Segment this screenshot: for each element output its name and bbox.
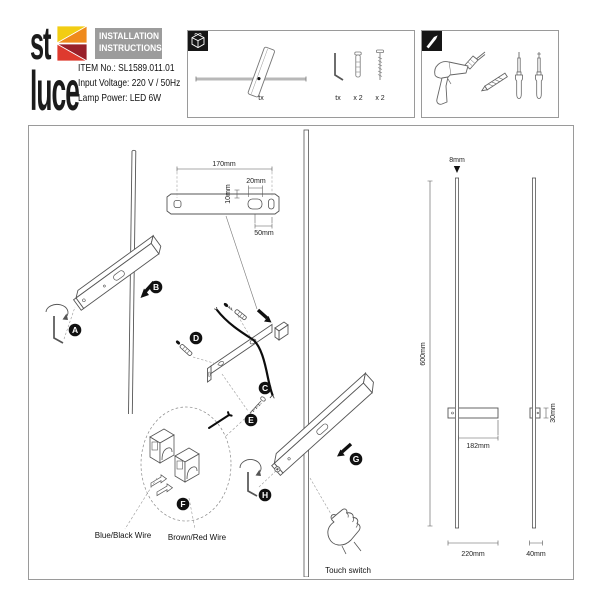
pencil-illustration [481,73,508,92]
title-line2: INSTRUCTIONS [99,43,154,55]
packed-lamp-illustration: tx [196,47,306,102]
dim-line-600 [428,181,433,526]
step-badge-e: E [245,414,258,427]
step-badge-c: C [259,382,272,395]
wall-junction-box [275,322,288,340]
wire-label-blue: Blue/Black Wire [95,531,152,540]
step-letter-b: B [153,282,159,292]
tube-front-view [455,178,458,528]
item-no: ITEM No.: SL1589.011.01 [78,62,175,74]
dim-600mm: 600mm [420,342,427,366]
dim-line-30 [544,408,549,418]
dim-170mm: 170mm [212,161,236,168]
dim-40mm: 40mm [526,551,546,558]
lamp-body-diagonal [248,47,275,98]
arrow-g-shaft [342,444,351,452]
lamp-tube-center [304,130,309,577]
screw-e [222,374,266,413]
dim-30mm: 30mm [550,403,557,423]
logo-text-luce: luce [30,60,79,115]
rotate-arrow-h [240,460,261,473]
dim-line-40 [530,541,543,546]
step-letter-f: F [180,499,185,509]
plate-slot-center [248,199,262,209]
step-letter-e: E [248,415,254,425]
installation-diagram: 170mm 20mm 10mm 50mm [29,126,571,577]
hex-key-a [54,316,63,343]
terminal-block-2 [175,448,199,482]
tube-side-view [532,178,535,528]
rotate-arrow-a [46,304,68,317]
step-badge-d: D [190,332,203,345]
drill-illustration [435,52,485,104]
front-view: 8mm 600mm 182mm 220mm [420,157,498,558]
assembly-tool-label: tx [258,95,264,102]
flat-screwdriver-illustration [516,52,523,99]
phillips-screwdriver-illustration [536,52,543,99]
detail-wire [209,412,232,428]
bracket-end-tab [208,366,212,382]
arrow-into-wallbox-shaft [258,310,267,318]
bracket-dimension-drawing: 170mm 20mm 10mm 50mm [167,161,279,309]
dim-line-220 [448,541,498,546]
instruction-sheet: st luce INSTALLATION INSTRUCTIONS ITEM N… [0,0,600,600]
main-diagram-box: 170mm 20mm 10mm 50mm [28,125,574,580]
touch-guide [310,478,331,514]
logo-color-block [57,26,87,61]
item-no-row: ITEM No.: SL1589.011.01 [78,62,198,77]
step-badge-b: B [150,281,163,294]
step-letter-h: H [262,490,268,500]
left-assembly [46,150,164,414]
title-line1: INSTALLATION [99,31,154,43]
wall-plug-qty: x 2 [353,95,362,102]
touch-switch-label: Touch switch [325,566,371,575]
dim-8mm: 8mm [449,157,465,164]
logo-word-bottom: luce [30,60,79,115]
dim-50mm: 50mm [254,230,274,237]
wire-arrow-1 [151,475,167,487]
lamp-body-left [71,236,164,311]
lamp-power: Lamp Power: LED 6W [78,92,161,104]
power-row: Lamp Power: LED 6W [78,92,198,107]
step-badge-f: F [177,498,190,511]
dim-20mm: 20mm [246,178,266,185]
dim-10mm: 10mm [225,184,232,204]
step-letter-g: G [353,454,360,464]
side-view: 30mm 40mm [526,178,557,558]
wire-arrow-2 [157,484,173,496]
hex-key-qty: tx [335,95,341,102]
leader-to-wallbox [226,216,257,309]
wall-plug-item: x 2 [353,52,362,102]
voltage-row: Input Voltage: 220 V / 50Hz [78,77,198,92]
dim-182mm: 182mm [466,443,490,450]
screw-item: x 2 [375,50,384,102]
plate-hole-left [174,201,181,208]
step-letter-d: D [193,333,199,343]
lamp-tube-left [129,151,136,414]
tube-top-cap [132,150,136,151]
rotate-arrowhead-a [63,314,69,321]
hex-key-item: tx [335,53,343,102]
dim-8mm-arrow [454,166,460,173]
tools-box [421,30,559,118]
bracket-mounting [175,302,288,413]
dim-line-50 [255,214,272,229]
hex-key-h [248,472,257,496]
dim-220mm: 220mm [461,551,485,558]
title-box: INSTALLATION INSTRUCTIONS [95,28,162,59]
terminal-block-1 [150,429,174,463]
parts-box: tx tx x 2 x 2 [187,30,415,118]
pointing-hand-illustration [328,509,361,554]
step-badge-a: A [69,324,82,337]
product-info: ITEM No.: SL1589.011.01 Input Voltage: 2… [78,62,198,107]
tools-illustration [422,31,556,115]
step-letter-c: C [262,383,268,393]
plate-hole-right [269,199,275,209]
wiring-detail: Blue/Black Wire Brown/Red Wire [95,399,266,542]
wire-label-brown: Brown/Red Wire [168,533,227,542]
screw-qty: x 2 [375,95,384,102]
parts-illustration: tx tx x 2 x 2 [188,31,412,115]
dim-line-182 [459,420,498,441]
step-badge-g: G [350,453,363,466]
step-letter-a: A [72,325,78,335]
step-badge-h: H [259,489,272,502]
input-voltage: Input Voltage: 220 V / 50Hz [78,77,180,89]
